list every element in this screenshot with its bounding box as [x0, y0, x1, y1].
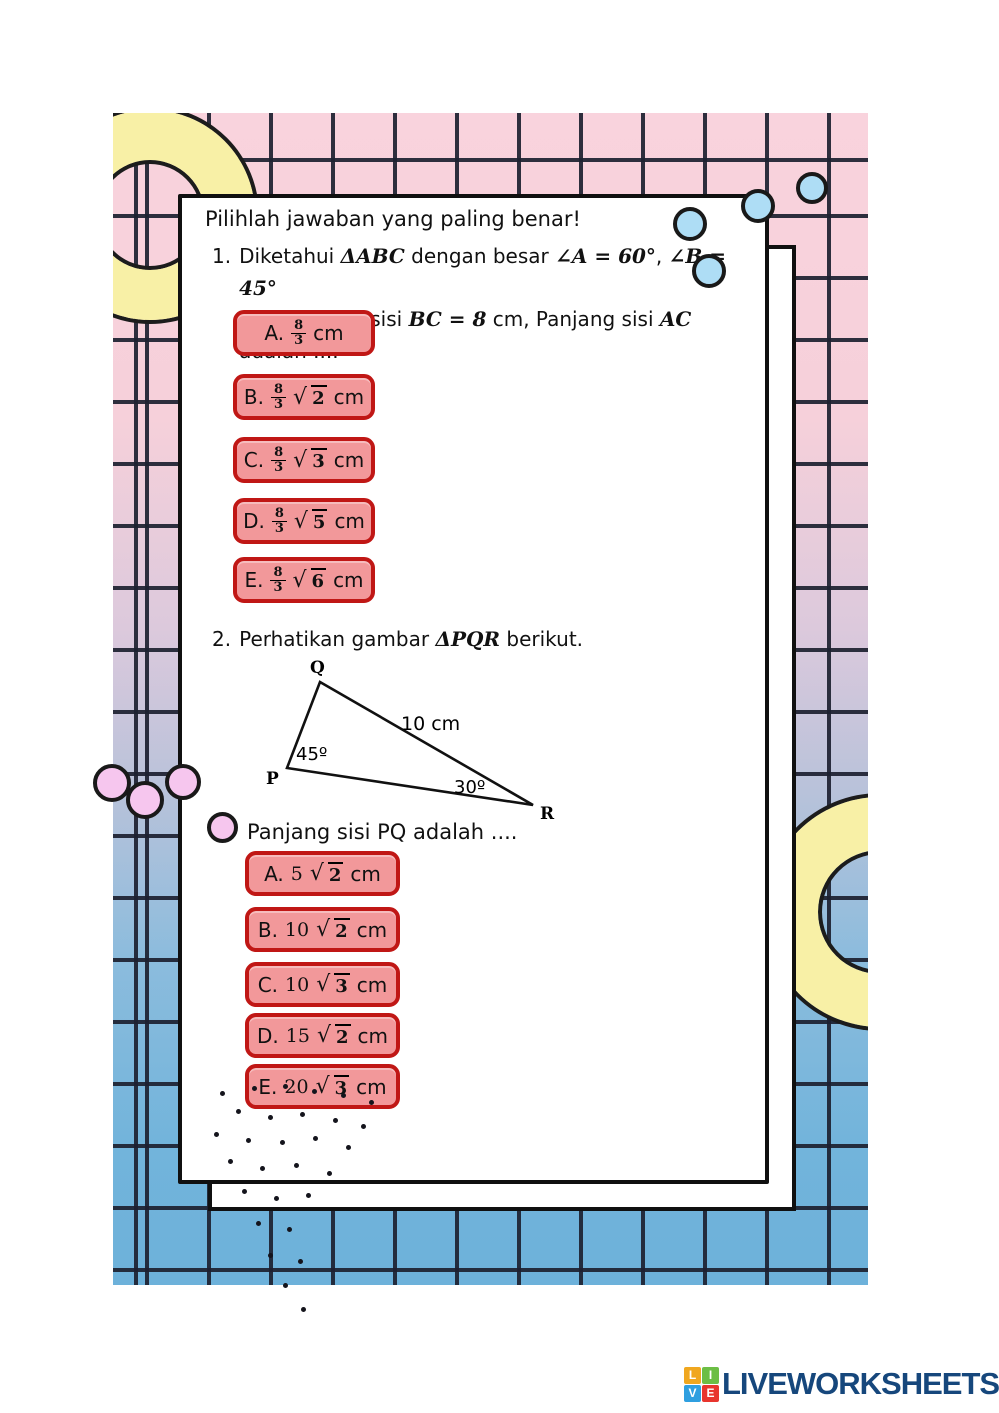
unit-label: cm — [358, 1024, 388, 1048]
option-letter: E. — [258, 1075, 277, 1099]
q1-text-segment: , — [656, 244, 669, 268]
vertex-label-q: Q — [310, 658, 325, 678]
fraction: 83 — [270, 566, 285, 594]
confetti-dot — [301, 1307, 306, 1312]
vertex-label-r: R — [540, 804, 555, 824]
confetti-dot — [327, 1171, 332, 1176]
unit-label: cm — [350, 862, 380, 886]
unit-label: cm — [357, 918, 387, 942]
logo-square-l: L — [684, 1367, 701, 1384]
confetti-dot — [313, 1136, 318, 1141]
fraction-numerator: 8 — [291, 319, 306, 334]
q1-text-segment: dengan besar — [405, 244, 555, 268]
option-letter: B. — [244, 385, 264, 409]
option-letter: C. — [258, 973, 278, 997]
q2-text-segment: berikut. — [500, 627, 583, 651]
q1-text-segment: Diketahui — [239, 244, 341, 268]
fraction-denominator: 3 — [275, 522, 284, 536]
unit-label: cm — [334, 448, 364, 472]
sqrt-symbol: √ — [293, 385, 307, 410]
question-2-prompt: Panjang sisi PQ adalah .... — [247, 820, 517, 844]
fraction-numerator: 8 — [271, 383, 286, 398]
pink-circle-decoration — [207, 812, 238, 843]
angle-r-label: 30º — [454, 777, 485, 798]
confetti-dot — [369, 1100, 374, 1105]
coefficient: 20 — [284, 1076, 308, 1098]
q1-math-segment: BC = 8 — [409, 307, 487, 331]
confetti-dot — [246, 1138, 251, 1143]
radicand: 2 — [328, 862, 344, 886]
confetti-dot — [294, 1163, 299, 1168]
question-2-text: Perhatikan gambar ΔPQR berikut. — [239, 624, 583, 656]
fraction: 83 — [272, 507, 287, 535]
q2-option-c-button[interactable]: C. 10 √3 cm — [245, 962, 400, 1007]
radicand: 2 — [335, 1024, 351, 1048]
logo-square-i: I — [702, 1367, 719, 1384]
option-letter: D. — [243, 509, 265, 533]
q1-math-segment: ΔABC — [341, 244, 405, 268]
coefficient: 10 — [285, 974, 309, 996]
confetti-dot — [298, 1259, 303, 1264]
option-letter: E. — [244, 568, 263, 592]
option-letter: B. — [258, 918, 278, 942]
unit-label: cm — [334, 509, 364, 533]
triangle-pqr-diagram: Q P R 10 cm 45º 30º — [258, 653, 593, 828]
unit-label: cm — [356, 1075, 386, 1099]
unit-label: cm — [313, 321, 343, 345]
unit-label: cm — [357, 973, 387, 997]
confetti-dot — [341, 1093, 346, 1098]
confetti-dot — [242, 1189, 247, 1194]
fraction: 83 — [271, 446, 286, 474]
confetti-dot — [274, 1196, 279, 1201]
q2-text-segment: Perhatikan gambar — [239, 627, 435, 651]
pink-circle-decoration — [126, 781, 164, 819]
sqrt-symbol: √ — [316, 972, 330, 997]
confetti-dot — [312, 1089, 317, 1094]
q1-option-e-button[interactable]: E. 83 √6 cm — [233, 557, 375, 603]
radicand: 2 — [311, 385, 327, 409]
confetti-dot — [283, 1283, 288, 1288]
radicand: 6 — [311, 568, 327, 592]
q2-option-b-button[interactable]: B. 10 √2 cm — [245, 907, 400, 952]
fraction-numerator: 8 — [272, 507, 287, 522]
sqrt-symbol: √ — [316, 917, 330, 942]
confetti-dot — [228, 1159, 233, 1164]
coefficient: 15 — [286, 1025, 310, 1047]
confetti-dot — [283, 1084, 288, 1089]
confetti-dot — [306, 1193, 311, 1198]
unit-label: cm — [334, 385, 364, 409]
vertex-label-p: P — [266, 769, 279, 789]
fraction-numerator: 8 — [271, 446, 286, 461]
confetti-dot — [300, 1112, 305, 1117]
blue-circle-decoration — [796, 172, 828, 204]
confetti-dot — [287, 1227, 292, 1232]
side-length-label: 10 cm — [401, 713, 460, 735]
radicand: 3 — [311, 448, 327, 472]
logo-square-v: V — [684, 1385, 701, 1402]
blue-circle-decoration — [741, 189, 775, 223]
coefficient: 10 — [285, 919, 309, 941]
confetti-dot — [280, 1140, 285, 1145]
q1-math-segment: AC — [660, 307, 691, 331]
radicand: 3 — [334, 973, 350, 997]
liveworksheets-logo-icon: L I V E — [684, 1367, 719, 1402]
pink-circle-decoration — [165, 764, 201, 800]
q1-option-c-button[interactable]: C. 83 √3 cm — [233, 437, 375, 483]
worksheet-page: Pilihlah jawaban yang paling benar! 1. D… — [0, 0, 999, 1413]
unit-label: cm — [333, 568, 363, 592]
q1-option-d-button[interactable]: D. 83 √5 cm — [233, 498, 375, 544]
confetti-dot — [220, 1091, 225, 1096]
sqrt-symbol: √ — [310, 861, 324, 886]
liveworksheets-logo: L I V E LIVEWORKSHEETS — [684, 1366, 999, 1402]
q2-option-e-button[interactable]: E. 20 √3 cm — [245, 1064, 400, 1109]
option-letter: A. — [264, 321, 284, 345]
option-letter: D. — [257, 1024, 279, 1048]
angle-p-label: 45º — [296, 744, 327, 765]
sqrt-symbol: √ — [293, 568, 307, 593]
q1-option-a-button[interactable]: A. 83 cm — [233, 310, 375, 356]
fraction-numerator: 8 — [270, 566, 285, 581]
q2-math-segment: ΔPQR — [435, 627, 500, 651]
confetti-dot — [214, 1132, 219, 1137]
blue-circle-decoration — [673, 207, 707, 241]
sqrt-symbol: √ — [294, 509, 308, 534]
option-letter: A. — [264, 862, 284, 886]
question-1-number: 1. — [212, 241, 231, 367]
page-title: Pilihlah jawaban yang paling benar! — [205, 207, 581, 231]
q1-text-segment: cm, Panjang sisi — [486, 307, 660, 331]
fraction-denominator: 3 — [273, 581, 282, 595]
confetti-dot — [260, 1166, 265, 1171]
q1-option-b-button[interactable]: B. 83 √2 cm — [233, 374, 375, 420]
confetti-dot — [346, 1145, 351, 1150]
fraction: 83 — [271, 383, 286, 411]
confetti-dot — [361, 1124, 366, 1129]
sqrt-symbol: √ — [293, 448, 307, 473]
logo-square-e: E — [702, 1385, 719, 1402]
sqrt-symbol: √ — [317, 1023, 331, 1048]
radicand: 2 — [334, 918, 350, 942]
question-2: 2. Perhatikan gambar ΔPQR berikut. — [212, 624, 752, 656]
confetti-dot — [252, 1086, 257, 1091]
q2-option-d-button[interactable]: D. 15 √2 cm — [245, 1013, 400, 1058]
fraction: 83 — [291, 319, 306, 347]
question-2-number: 2. — [212, 624, 231, 656]
q2-option-a-button[interactable]: A. 5 √2 cm — [245, 851, 400, 896]
fraction-denominator: 3 — [274, 398, 283, 412]
confetti-dot — [268, 1115, 273, 1120]
confetti-dot — [256, 1221, 261, 1226]
blue-circle-decoration — [692, 254, 726, 288]
fraction-denominator: 3 — [294, 334, 303, 348]
radicand: 5 — [312, 509, 328, 533]
liveworksheets-logo-text: LIVEWORKSHEETS — [722, 1366, 999, 1402]
sqrt-symbol: √ — [316, 1074, 330, 1099]
confetti-dot — [333, 1118, 338, 1123]
fraction-denominator: 3 — [274, 461, 283, 475]
confetti-dot — [268, 1253, 273, 1258]
q1-math-segment: ∠A = 60° — [555, 244, 656, 268]
coefficient: 5 — [291, 863, 303, 885]
option-letter: C. — [244, 448, 264, 472]
confetti-dot — [236, 1109, 241, 1114]
